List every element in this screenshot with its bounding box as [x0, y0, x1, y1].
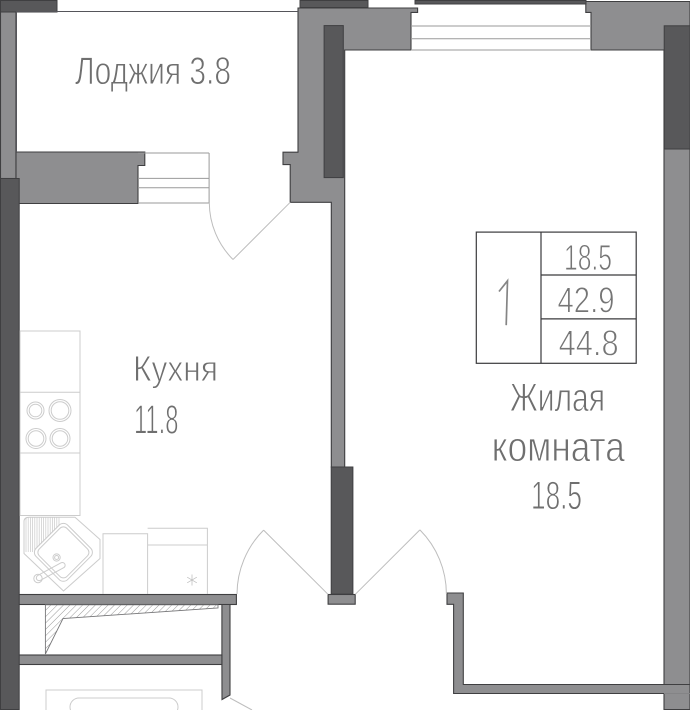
svg-text:Лоджия 3.8: Лоджия 3.8 — [75, 50, 231, 93]
svg-text:Жилая: Жилая — [510, 376, 605, 420]
svg-text:Кухня: Кухня — [133, 348, 218, 389]
svg-text:44.8: 44.8 — [559, 323, 619, 364]
svg-text:18.5: 18.5 — [564, 237, 612, 278]
svg-text:42.9: 42.9 — [558, 280, 615, 321]
svg-text:11.8: 11.8 — [134, 396, 179, 442]
svg-text:комната: комната — [492, 423, 626, 470]
svg-text:18.5: 18.5 — [531, 474, 582, 518]
